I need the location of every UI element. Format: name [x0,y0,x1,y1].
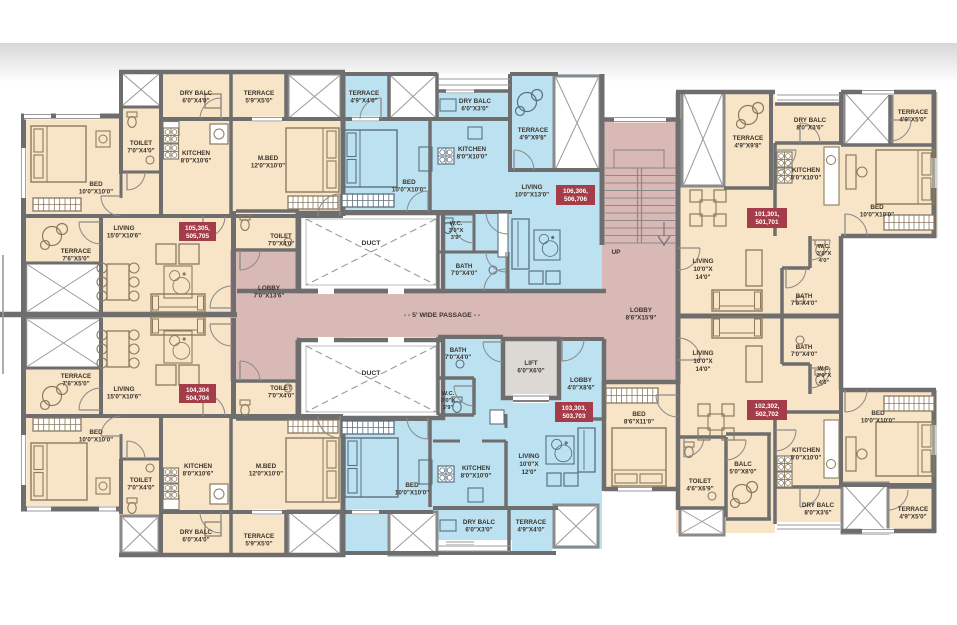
svg-text:BED: BED [89,181,103,188]
svg-text:7'0"X4'0": 7'0"X4'0" [268,392,294,399]
svg-text:W.C.: W.C. [450,221,463,227]
svg-text:TOILET: TOILET [130,477,152,484]
svg-text:KITCHEN: KITCHEN [792,447,820,454]
svg-text:10'0"X10'0": 10'0"X10'0" [79,437,113,444]
svg-text:LOBBY: LOBBY [630,307,653,314]
svg-text:8'0"X10'6": 8'0"X10'6" [183,471,214,478]
svg-text:15'0"X10'6": 15'0"X10'6" [107,233,141,240]
svg-text:4'9"X9'8": 4'9"X9'8" [519,135,546,142]
svg-text:10'0"X10'0": 10'0"X10'0" [861,418,895,425]
svg-text:W.C.: W.C. [442,391,455,397]
svg-text:8'0"X10'0": 8'0"X10'0" [457,154,488,161]
svg-text:6'0"X3'0": 6'0"X3'0" [461,106,488,113]
svg-text:7'0"X4'0": 7'0"X4'0" [268,240,294,247]
svg-text:4'0": 4'0" [819,380,830,386]
svg-text:7'0"X4'0": 7'0"X4'0" [127,148,154,155]
svg-text:7'0"X4'0": 7'0"X4'0" [445,354,471,361]
svg-text:7'0"X4'0": 7'0"X4'0" [791,300,817,307]
svg-text:DRY BALC: DRY BALC [180,90,213,97]
svg-text:LOBBY: LOBBY [258,285,281,292]
svg-text:3'0"X: 3'0"X [449,228,464,234]
svg-text:W.C.: W.C. [818,366,831,372]
svg-text:LIVING: LIVING [693,350,714,357]
svg-text:7'6"X5'0": 7'6"X5'0" [62,256,89,263]
svg-text:UP: UP [611,249,621,256]
svg-text:TOILET: TOILET [130,140,152,147]
svg-text:3'9": 3'9" [443,405,454,411]
svg-text:- - 5' WIDE PASSAGE - -: - - 5' WIDE PASSAGE - - [404,312,480,319]
svg-text:6'0"X3'0": 6'0"X3'0" [465,527,492,534]
svg-text:BATH: BATH [450,347,466,354]
svg-text:TERRACE: TERRACE [518,127,548,134]
svg-text:7'0"X4'0": 7'0"X4'0" [127,485,154,492]
svg-text:LIFT: LIFT [524,360,537,367]
svg-text:8'0"X10'0": 8'0"X10'0" [461,473,492,480]
svg-text:10'0"X10'0": 10'0"X10'0" [395,490,429,497]
svg-text:103,303,: 103,303, [562,405,587,412]
svg-text:KITCHEN: KITCHEN [792,167,820,174]
svg-text:8'0"X10'0": 8'0"X10'0" [791,455,822,462]
svg-text:BED: BED [870,204,884,211]
svg-text:TOILET: TOILET [270,385,292,392]
svg-text:10'0"X: 10'0"X [693,358,713,365]
svg-text:LIVING: LIVING [693,258,714,265]
svg-text:4'6"X6'9": 4'6"X6'9" [686,486,713,493]
svg-text:4'9"X4'0": 4'9"X4'0" [517,527,544,534]
svg-text:KITCHEN: KITCHEN [462,465,490,472]
svg-text:DRY BALC: DRY BALC [794,117,827,124]
svg-text:7'0"X13'6": 7'0"X13'6" [254,293,285,300]
svg-text:8'0"X10'6": 8'0"X10'6" [181,158,212,165]
svg-text:15'0"X10'6": 15'0"X10'6" [107,394,141,401]
svg-text:4'0"X8'6": 4'0"X8'6" [567,385,594,392]
svg-text:7'0"X4'0": 7'0"X4'0" [451,270,477,277]
svg-text:DRY BALC: DRY BALC [459,98,492,105]
svg-text:501,701: 501,701 [755,219,779,226]
svg-text:LIVING: LIVING [114,225,135,232]
svg-text:14'0": 14'0" [696,366,711,373]
svg-text:DRY BALC: DRY BALC [180,529,213,536]
svg-text:3'9": 3'9" [451,235,462,241]
svg-text:102,302,: 102,302, [755,403,780,410]
svg-text:8'0"X10'0": 8'0"X10'0" [791,175,822,182]
svg-text:BED: BED [89,429,103,436]
svg-text:10'0"X13'0": 10'0"X13'0" [515,192,549,199]
svg-text:DRY BALC: DRY BALC [802,502,835,509]
svg-text:10'0"X10'0": 10'0"X10'0" [79,189,113,196]
svg-text:12'0"X10'0": 12'0"X10'0" [249,471,283,478]
svg-text:KITCHEN: KITCHEN [182,150,210,157]
svg-text:DUCT: DUCT [362,240,382,247]
svg-text:101,301,: 101,301, [755,211,780,218]
svg-text:TERRACE: TERRACE [898,109,928,116]
svg-text:12'0"X10'0": 12'0"X10'0" [251,163,285,170]
svg-text:12'0": 12'0" [522,469,537,476]
svg-text:3'0"X: 3'0"X [817,251,832,257]
svg-text:BED: BED [402,179,416,186]
svg-text:W.C.: W.C. [818,244,831,250]
svg-text:10'0"X10'0": 10'0"X10'0" [392,187,426,194]
svg-text:8'0"X3'6": 8'0"X3'6" [796,125,823,132]
svg-text:8'6"X15'9": 8'6"X15'9" [626,315,657,322]
svg-text:502,702: 502,702 [755,411,779,418]
svg-text:105,305,: 105,305, [185,225,210,232]
svg-text:TOILET: TOILET [270,233,292,240]
svg-text:104,304: 104,304 [186,387,210,394]
svg-text:4'0": 4'0" [819,258,830,264]
svg-text:BED: BED [871,410,885,417]
svg-text:LOBBY: LOBBY [570,377,593,384]
svg-text:6'0"X4'0": 6'0"X4'0" [182,98,209,105]
svg-text:14'0": 14'0" [696,274,711,281]
svg-text:TERRACE: TERRACE [733,135,763,142]
svg-text:6'0"X6'0": 6'0"X6'0" [517,368,544,375]
svg-text:505,705: 505,705 [186,233,210,240]
svg-text:7'0"X4'0": 7'0"X4'0" [791,351,817,358]
svg-text:TERRACE: TERRACE [898,506,928,513]
svg-text:5'9"X5'0": 5'9"X5'0" [245,541,272,548]
svg-text:BALC: BALC [734,461,752,468]
svg-text:7'6"X5'0": 7'6"X5'0" [62,381,89,388]
svg-text:3'0"X: 3'0"X [441,398,456,404]
svg-text:BATH: BATH [796,344,812,351]
svg-text:LIVING: LIVING [519,453,540,460]
svg-text:503,703: 503,703 [562,413,586,420]
svg-text:5'9"X5'0": 5'9"X5'0" [245,98,272,105]
svg-text:8'0"X3'6": 8'0"X3'6" [804,510,831,517]
svg-text:10'0"X: 10'0"X [693,266,713,273]
svg-text:TOILET: TOILET [689,478,711,485]
svg-text:4'9"X9'8": 4'9"X9'8" [734,143,761,150]
svg-text:LIVING: LIVING [522,184,543,191]
svg-text:3'0"X: 3'0"X [817,373,832,379]
svg-text:10'0"X: 10'0"X [519,461,539,468]
svg-text:4'9"X4'0": 4'9"X4'0" [350,98,377,105]
svg-text:TERRACE: TERRACE [244,90,274,97]
svg-text:4'9"X5'0": 4'9"X5'0" [899,514,926,521]
svg-text:TERRACE: TERRACE [61,248,91,255]
svg-text:KITCHEN: KITCHEN [458,146,486,153]
svg-text:106,306,: 106,306, [563,188,588,195]
svg-text:6'0"X4'0": 6'0"X4'0" [182,537,209,544]
svg-text:8'6"X11'0": 8'6"X11'0" [624,419,654,426]
svg-text:KITCHEN: KITCHEN [184,463,212,470]
svg-text:TERRACE: TERRACE [61,373,91,380]
svg-text:M.BED: M.BED [256,463,277,470]
svg-text:DRY BALC: DRY BALC [463,519,496,526]
svg-text:4'9"X5'0": 4'9"X5'0" [899,117,926,124]
svg-text:TERRACE: TERRACE [244,533,274,540]
svg-text:BED: BED [405,482,419,489]
svg-text:BATH: BATH [796,293,812,300]
svg-text:5'0"X8'0": 5'0"X8'0" [729,469,756,476]
svg-text:M.BED: M.BED [258,155,279,162]
svg-text:TERRACE: TERRACE [516,519,546,526]
svg-text:506,706: 506,706 [564,196,588,203]
svg-text:DUCT: DUCT [362,370,382,377]
svg-text:TERRACE: TERRACE [349,90,379,97]
svg-text:BATH: BATH [456,263,472,270]
svg-text:LIVING: LIVING [114,386,135,393]
svg-text:10'0"X10'0": 10'0"X10'0" [860,212,894,219]
svg-text:BED: BED [632,411,646,418]
svg-text:504,704: 504,704 [186,395,210,402]
